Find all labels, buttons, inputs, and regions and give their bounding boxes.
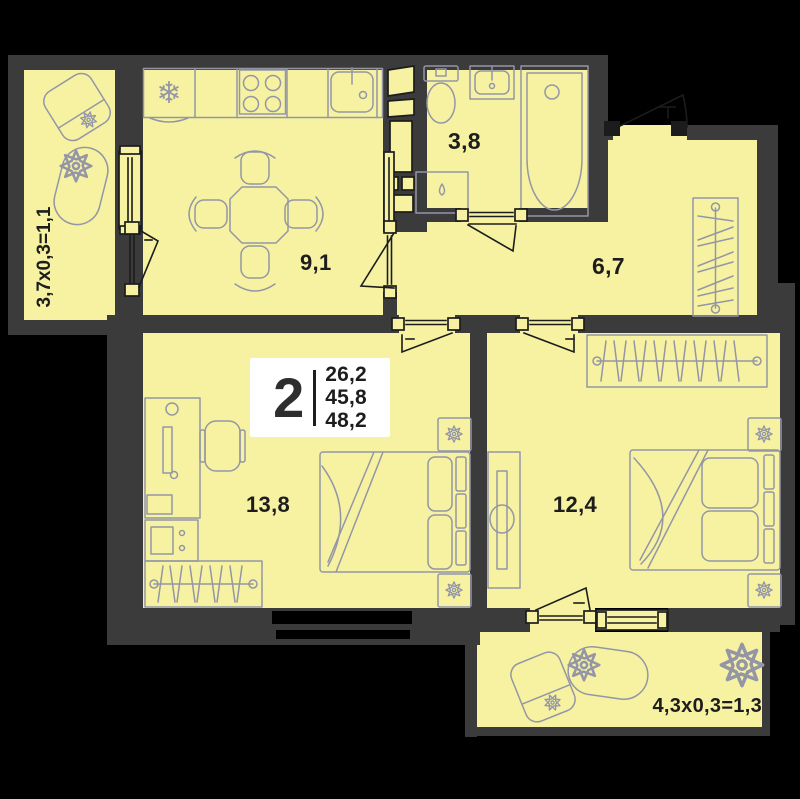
- opening-bedroom1-door: [399, 315, 455, 333]
- wall: [115, 70, 143, 322]
- area-living: 26,2: [325, 363, 367, 386]
- wall: [107, 608, 480, 645]
- apartment-info-box: 2 26,2 45,8 48,2: [250, 358, 390, 437]
- balcony-bottom-window-icon: [596, 610, 668, 630]
- wall-vent-shaft: [383, 55, 427, 232]
- wall: [8, 55, 24, 335]
- opening-entrance: [613, 125, 687, 140]
- area-apartment: 45,8: [325, 386, 367, 409]
- opening-kitchen-door: [383, 232, 397, 292]
- wall: [487, 608, 530, 632]
- room-label-bedroom-small: 13,8: [246, 492, 290, 518]
- wall: [757, 125, 778, 305]
- room-label-bathroom: 3,8: [448, 128, 481, 155]
- wall: [668, 608, 780, 632]
- wall: [107, 315, 143, 645]
- wall-balcony-parapet: [762, 632, 770, 736]
- rooms-count: 2: [273, 370, 304, 426]
- wall: [8, 55, 608, 70]
- room-label-hallway: 6,7: [592, 253, 625, 280]
- wall-balcony-parapet: [465, 727, 770, 736]
- opening-balcony-door: [530, 608, 595, 632]
- area-total: 48,2: [325, 409, 367, 432]
- wall: [780, 300, 795, 625]
- floor-plan: ❄: [0, 0, 800, 799]
- info-divider: [313, 370, 316, 426]
- wall: [383, 292, 397, 318]
- room-hallway-lower: [397, 222, 757, 315]
- room-label-balcony-bottom: 4,3x0,3=1,3: [590, 695, 762, 718]
- wall: [470, 315, 487, 632]
- room-label-kitchen: 9,1: [300, 250, 331, 276]
- room-bedroom-large: [487, 333, 780, 608]
- room-label-bedroom-large: 12,4: [553, 492, 597, 518]
- room-label-balcony-left: 3,7x0,3=1,1: [34, 187, 56, 327]
- opening-bedroom2-door: [520, 315, 578, 333]
- room-kitchen: [143, 70, 383, 318]
- opening-bathroom-door: [461, 208, 519, 222]
- wall: [465, 643, 477, 737]
